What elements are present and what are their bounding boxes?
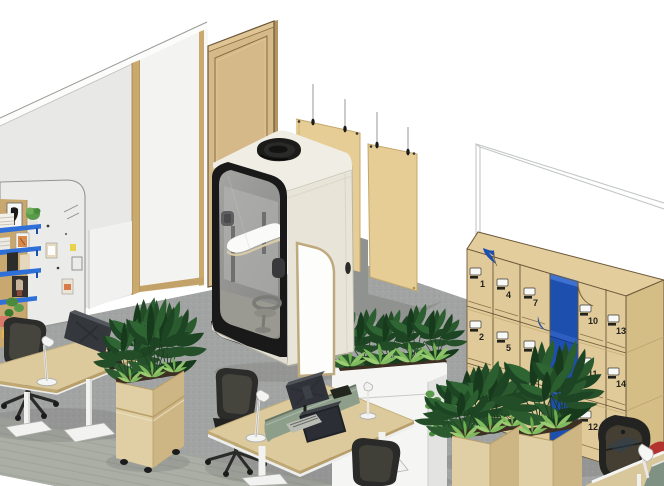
svg-text:1: 1 [480, 279, 485, 289]
svg-text:7: 7 [533, 298, 538, 308]
svg-text:4: 4 [506, 290, 511, 300]
svg-text:13: 13 [616, 326, 626, 336]
svg-text:2: 2 [479, 332, 484, 342]
svg-text:5: 5 [506, 343, 511, 353]
svg-text:10: 10 [588, 316, 598, 326]
svg-text:12: 12 [588, 422, 598, 432]
svg-text:14: 14 [616, 379, 626, 389]
